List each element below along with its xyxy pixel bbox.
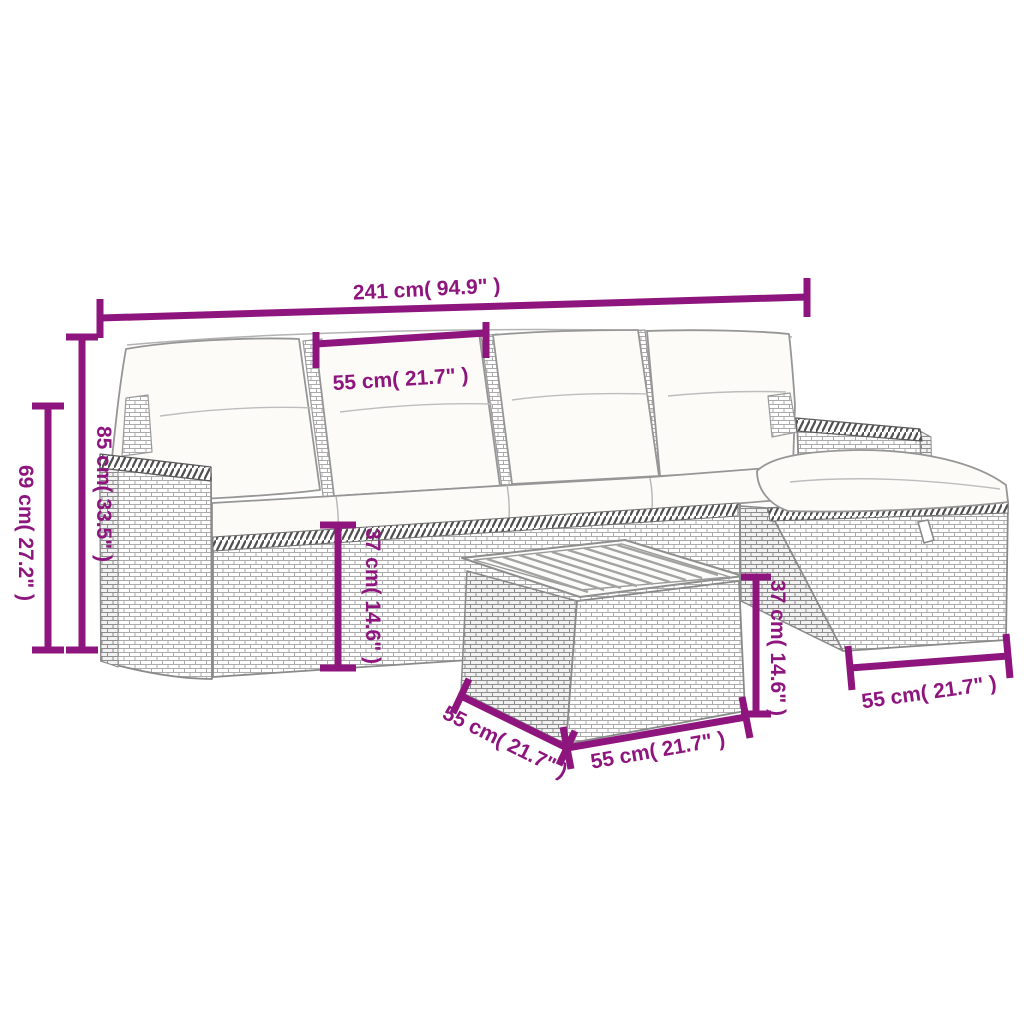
dim-table-height-label: 37 cm( 14.6" ) bbox=[766, 580, 789, 716]
dim-line bbox=[850, 656, 1008, 668]
dim-total-width: 241 cm( 94.9" ) bbox=[100, 274, 807, 338]
dim-cap-end bbox=[1006, 634, 1010, 678]
dim-arm-height: 69 cm( 27.2" ) bbox=[14, 406, 64, 650]
back-cushion-3 bbox=[493, 330, 659, 484]
dim-line bbox=[100, 297, 807, 318]
back-cushion-2 bbox=[316, 333, 500, 496]
dim-cap-end bbox=[742, 697, 750, 738]
dim-cap-start bbox=[848, 646, 852, 690]
dim-back-height-label: 85 cm( 33.5" ) bbox=[92, 426, 115, 562]
furniture-dimension-diagram: 241 cm( 94.9" ) 55 cm( 21.7" ) 69 cm( 27… bbox=[0, 0, 1024, 1024]
left-armrest bbox=[100, 454, 212, 679]
corner-post-left bbox=[122, 395, 152, 456]
sofa-illustration bbox=[100, 330, 1008, 744]
dim-ottoman-width-label: 55 cm( 21.7" ) bbox=[860, 672, 998, 714]
dim-total-width-label: 241 cm( 94.9" ) bbox=[352, 274, 501, 304]
ottoman-cushion bbox=[757, 450, 1008, 512]
dim-seat-height-label: 37 cm( 14.6" ) bbox=[361, 528, 384, 664]
dim-arm-height-label: 69 cm( 27.2" ) bbox=[14, 465, 37, 601]
diagram-canvas: 241 cm( 94.9" ) 55 cm( 21.7" ) 69 cm( 27… bbox=[0, 0, 1024, 1024]
